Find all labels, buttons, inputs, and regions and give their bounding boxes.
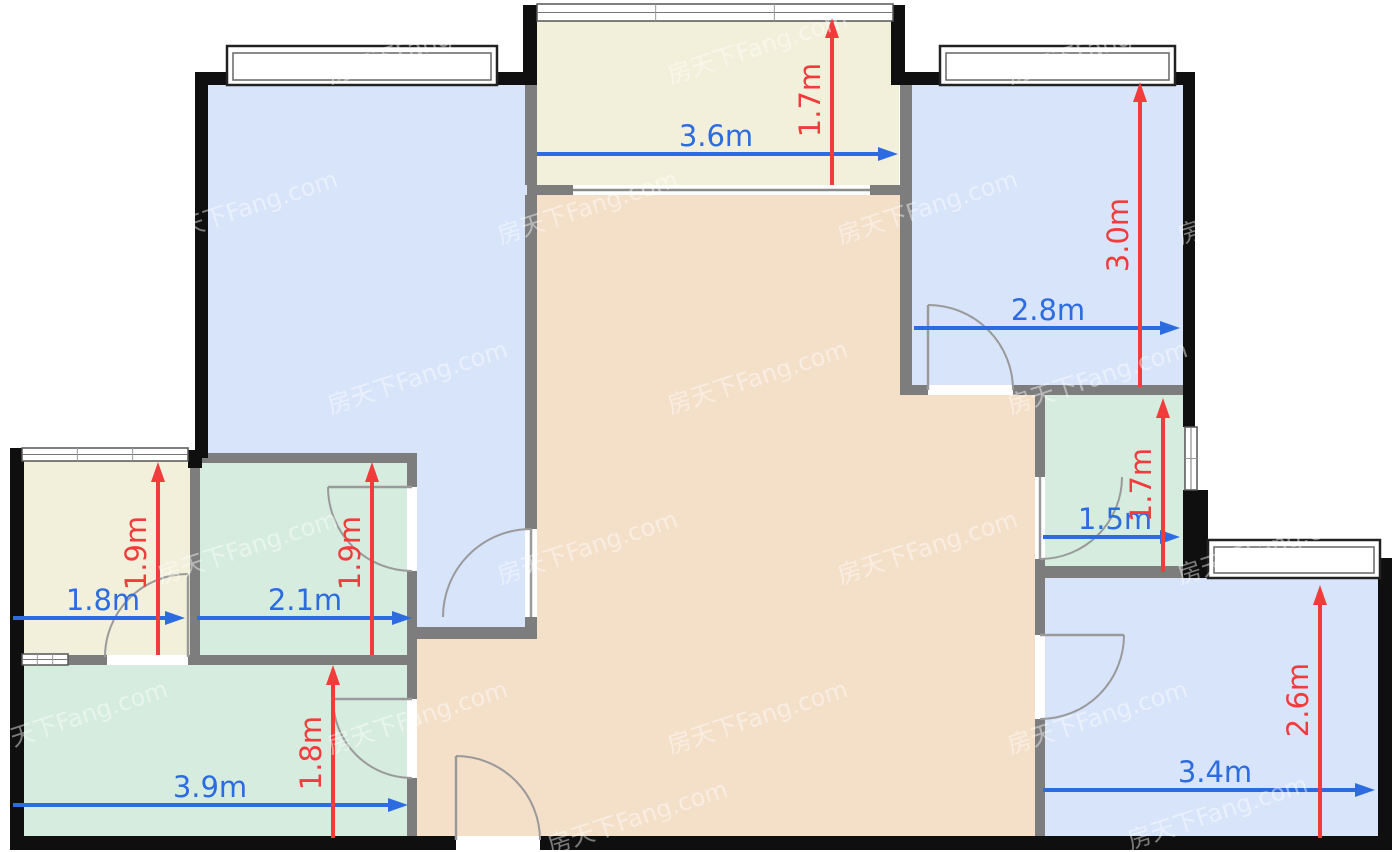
window-bathroom-right [1185, 427, 1197, 490]
wall-segment-exterior [1183, 72, 1195, 427]
wall-segment-interior [900, 85, 912, 185]
dim-label: 2.6m [1281, 663, 1315, 737]
dim-label: 3.6m [679, 119, 753, 153]
door-opening [407, 487, 417, 571]
wall-segment-exterior [10, 448, 24, 850]
wall-segment-interior [192, 453, 417, 463]
door-opening [1035, 635, 1045, 719]
floor-plan: 3.6m1.7m2.8m3.0m1.5m1.7m3.4m2.6m1.8m1.9m… [0, 0, 1400, 852]
dim-label: 1.8m [294, 716, 328, 790]
dim-label: 1.7m [793, 63, 827, 137]
dim-label: 3.0m [1101, 198, 1135, 272]
window-balcony-left [22, 448, 188, 461]
dim-label: 1.9m [119, 516, 153, 590]
wall-segment-interior [407, 778, 417, 836]
wall-segment-exterior [10, 836, 456, 850]
wall-segment-interior [525, 85, 537, 185]
wall-segment-exterior [523, 5, 537, 85]
wall-segment-interior [417, 627, 537, 639]
wall-segment-interior [900, 385, 928, 395]
wall-segment-interior [188, 655, 417, 665]
dim-label: 1.7m [1124, 448, 1158, 522]
dim-label: 2.1m [268, 583, 342, 617]
room-bedroom-top-right [906, 80, 1189, 390]
door-opening [456, 836, 540, 850]
wall-segment-exterior [540, 836, 1390, 850]
floor-plan-svg: 3.6m1.7m2.8m3.0m1.5m1.7m3.4m2.6m1.8m1.9m… [0, 0, 1400, 852]
window-kitchen [22, 654, 68, 665]
room-balcony-top [531, 12, 899, 190]
wall-segment-interior [525, 195, 537, 529]
wall-segment-interior [68, 655, 107, 665]
dim-label: 3.9m [173, 770, 247, 804]
door-opening [107, 655, 188, 665]
wall-segment-exterior [188, 450, 202, 468]
wall-segment-exterior [195, 72, 208, 458]
wall-segment-interior [407, 665, 417, 699]
dim-label: 2.8m [1011, 293, 1085, 327]
wall-segment-exterior [1378, 558, 1392, 850]
wall-segment-interior [1035, 578, 1045, 635]
door-opening [928, 385, 1013, 395]
wall-segment-interior [407, 453, 417, 487]
dim-label: 3.4m [1178, 755, 1252, 789]
